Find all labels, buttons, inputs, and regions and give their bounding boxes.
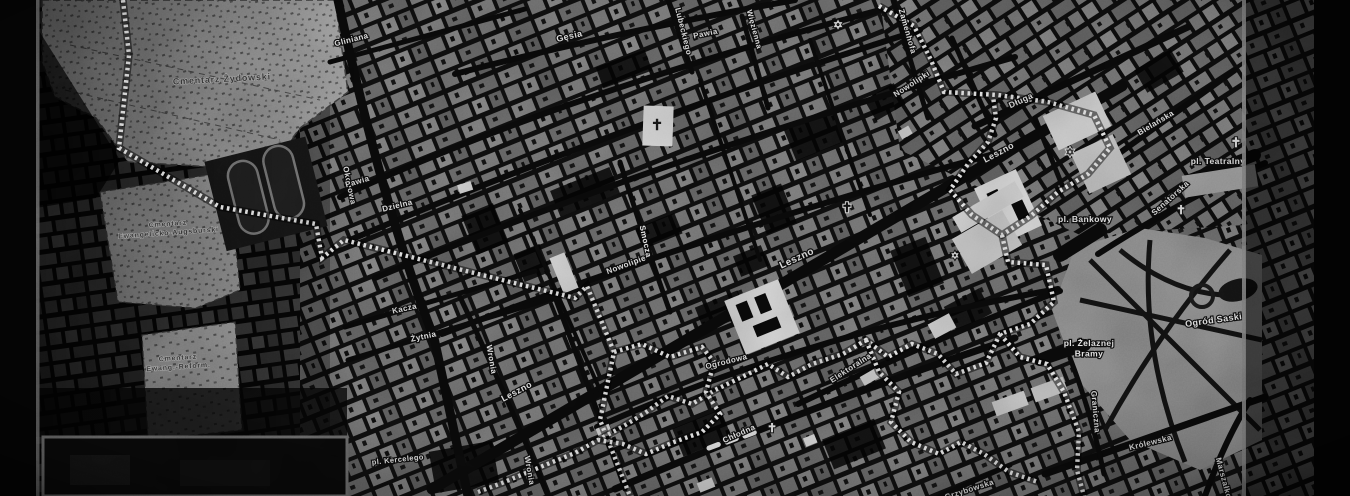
photographed-map-display: Cmentarz ŻydowskiCmentarzEwangelicko-Aug… bbox=[0, 0, 1350, 496]
warsaw-ghetto-map: Cmentarz ŻydowskiCmentarzEwangelicko-Aug… bbox=[0, 0, 1350, 496]
vignette bbox=[0, 0, 1350, 496]
